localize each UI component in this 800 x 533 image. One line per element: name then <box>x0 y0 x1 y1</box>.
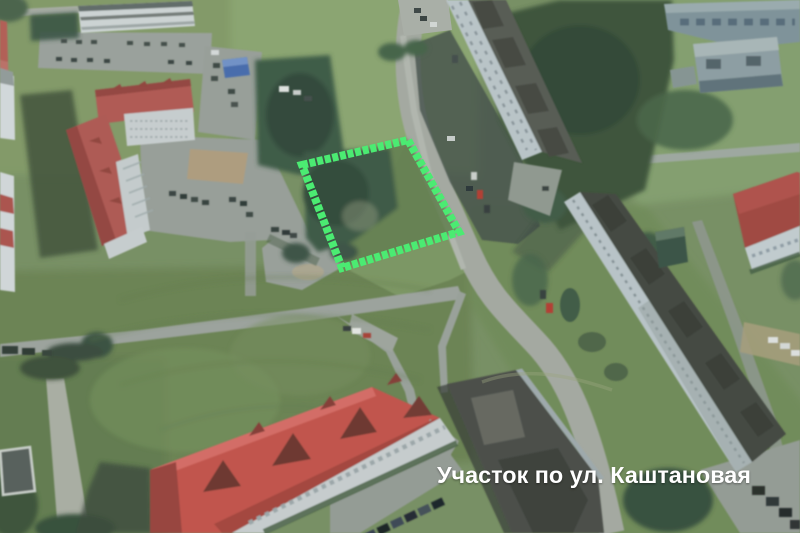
svg-text:Участок по ул. Каштановая: Участок по ул. Каштановая <box>437 462 751 488</box>
